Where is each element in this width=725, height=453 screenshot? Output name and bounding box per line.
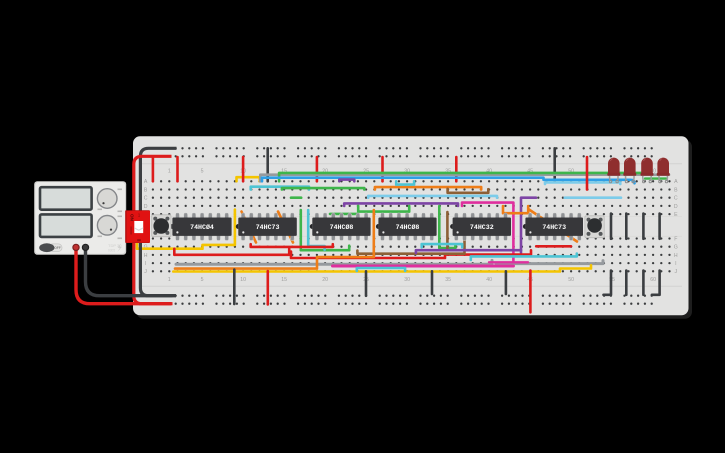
svg-text:H: H (674, 253, 678, 259)
svg-text:I: I (145, 261, 146, 267)
svg-text:OFF: OFF (54, 246, 61, 250)
svg-text:D: D (144, 204, 148, 210)
svg-text:20: 20 (322, 277, 328, 283)
svg-text:B: B (674, 187, 678, 193)
svg-text:C: C (144, 196, 148, 202)
svg-text:1: 1 (168, 277, 171, 283)
svg-text:30: 30 (404, 277, 410, 283)
svg-text:ON: ON (130, 214, 135, 222)
svg-text:G: G (674, 245, 678, 251)
svg-text:A: A (144, 179, 148, 185)
svg-text:J: J (144, 269, 147, 275)
svg-text:A: A (674, 179, 678, 185)
svg-text:F: F (674, 236, 677, 242)
svg-text:H: H (144, 253, 148, 259)
svg-text:74HCØ8: 74HCØ8 (330, 223, 354, 231)
svg-text:B: B (144, 187, 148, 193)
svg-text:60: 60 (650, 277, 656, 283)
svg-text:E: E (674, 212, 678, 218)
svg-text:74HC32: 74HC32 (470, 224, 494, 231)
svg-text:74HCØ4: 74HCØ4 (190, 223, 214, 231)
svg-text:74HCØ8: 74HCØ8 (396, 223, 420, 231)
svg-text:0305: 0305 (108, 249, 115, 253)
svg-text:5: 5 (201, 277, 204, 283)
svg-text:74HC73: 74HC73 (542, 224, 566, 231)
svg-text:15: 15 (281, 277, 287, 283)
svg-text:40: 40 (486, 277, 492, 283)
svg-text:D: D (674, 204, 678, 210)
svg-text:1: 1 (168, 169, 171, 175)
svg-text:I: I (675, 261, 676, 267)
svg-text:35: 35 (445, 277, 451, 283)
svg-text:50: 50 (568, 277, 574, 283)
svg-text:5: 5 (201, 169, 204, 175)
svg-text:J: J (675, 269, 678, 275)
svg-text:C: C (674, 196, 678, 202)
svg-text:10: 10 (240, 277, 246, 283)
svg-text:74HC73: 74HC73 (256, 224, 280, 231)
